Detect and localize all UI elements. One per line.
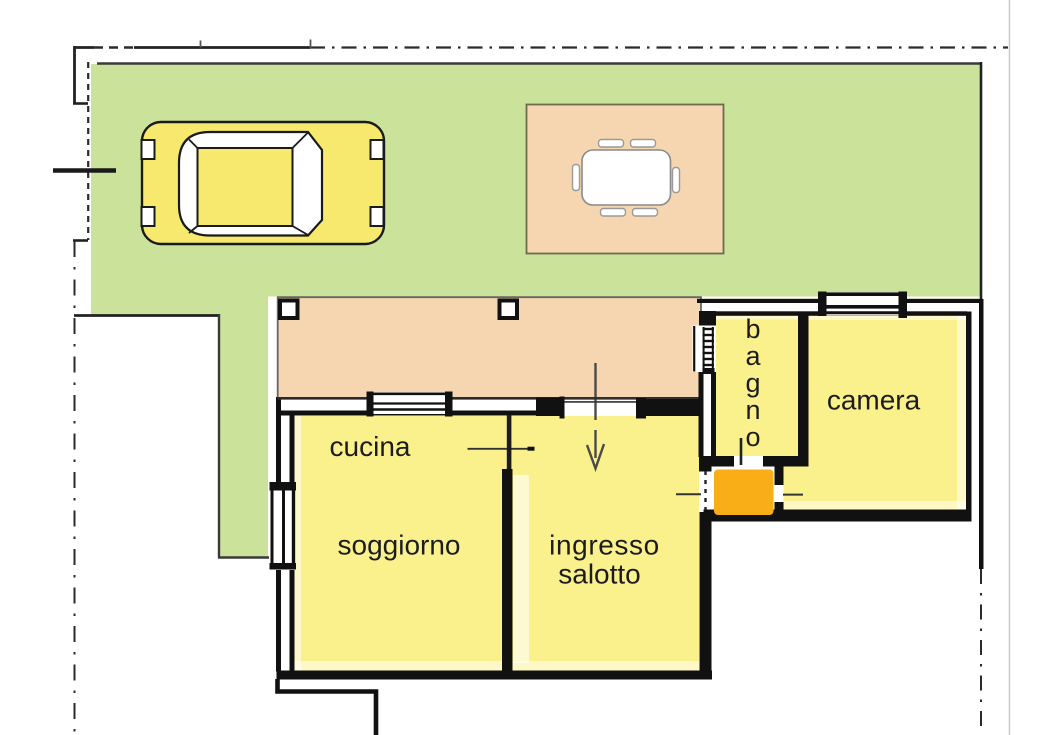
svg-text:g: g: [745, 368, 760, 398]
svg-text:salotto: salotto: [558, 559, 641, 590]
svg-text:ingresso: ingresso: [549, 530, 660, 561]
svg-text:b: b: [745, 314, 760, 344]
svg-text:o: o: [745, 422, 760, 452]
svg-text:cucina: cucina: [330, 431, 411, 462]
svg-text:soggiorno: soggiorno: [338, 530, 461, 561]
svg-text:n: n: [745, 395, 760, 425]
svg-text:camera: camera: [827, 385, 921, 416]
svg-text:a: a: [745, 341, 761, 371]
